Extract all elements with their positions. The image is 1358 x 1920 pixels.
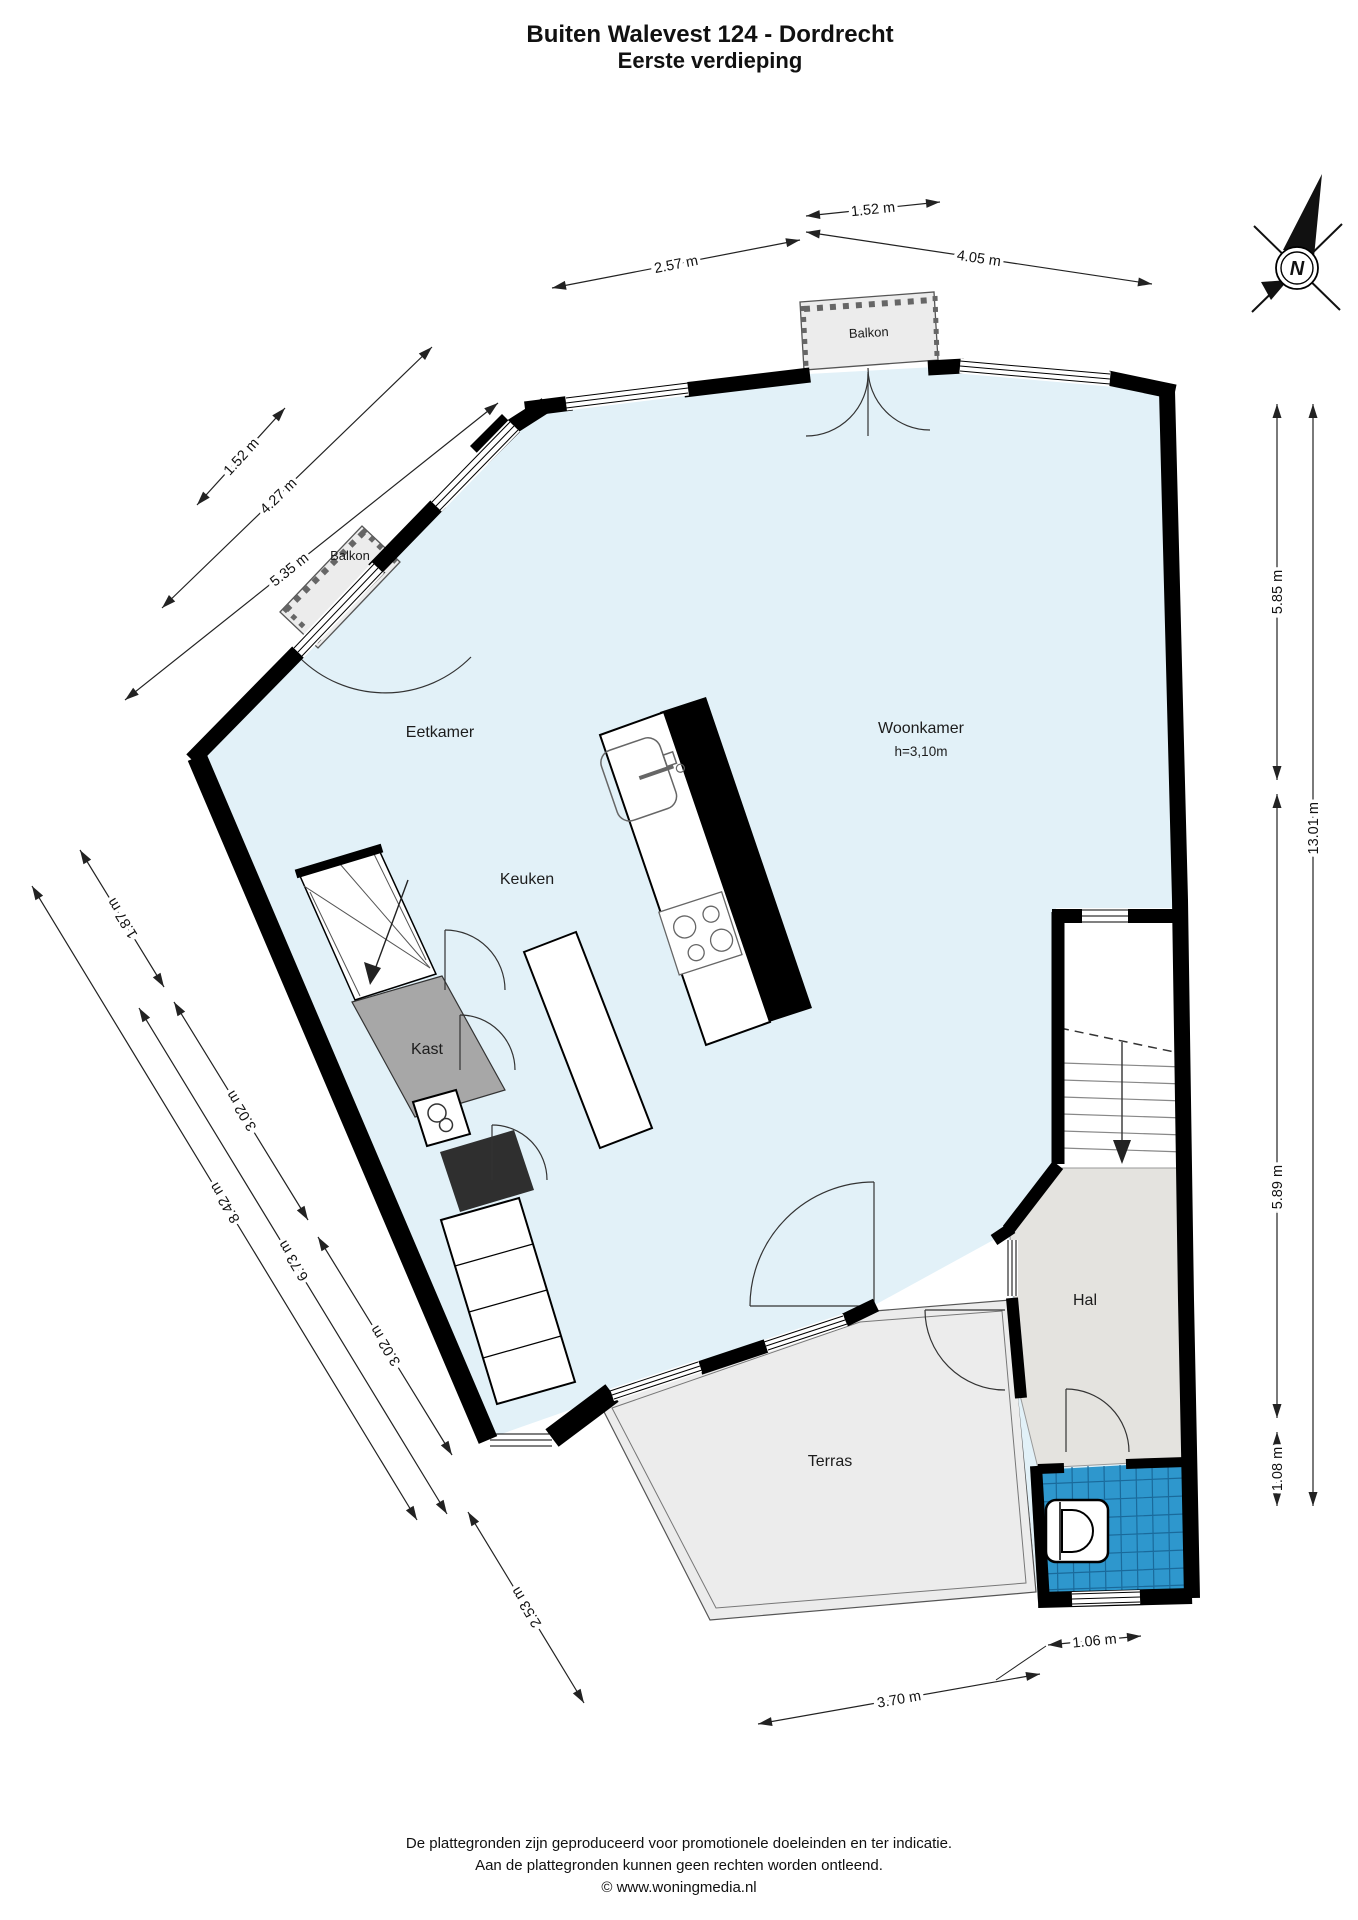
room-label-balkon-top: Balkon	[849, 324, 889, 341]
room-label-kast: Kast	[411, 1041, 444, 1058]
dimension-arrowhead	[552, 281, 567, 290]
dimension-arrowhead	[758, 1717, 773, 1726]
footer-copyright: © www.woningmedia.nl	[601, 1879, 756, 1896]
dimension: 2.53 m	[468, 1512, 584, 1703]
compass-north-label: N	[1290, 258, 1305, 280]
dimension: 1.52 m	[197, 408, 285, 505]
toilet-fixture	[1046, 1500, 1108, 1562]
dimension-arrowhead	[1309, 404, 1318, 418]
dimension-arrowhead	[297, 1206, 308, 1220]
dimension-arrowhead	[1273, 404, 1282, 418]
dimension-label: 6.73 m	[276, 1237, 313, 1283]
dimension-arrowhead	[806, 210, 820, 219]
dimension-arrowhead	[80, 850, 91, 864]
dimension-arrowhead	[926, 199, 940, 208]
dimension: 3.70 m	[758, 1672, 1040, 1726]
footer-disclaimer-1: De plattegronden zijn geproduceerd voor …	[406, 1835, 952, 1852]
dimension-arrowhead	[1273, 1404, 1282, 1418]
room-label-eetkamer: Eetkamer	[406, 724, 475, 741]
dimension-label: 1.52 m	[850, 200, 896, 221]
room-label-keuken: Keuken	[500, 871, 554, 888]
dimension-label: 1.52 m	[221, 435, 263, 479]
dimension-label: 4.05 m	[956, 248, 1002, 270]
dimension-label: 1.87 m	[104, 895, 141, 941]
dimension: 1.06 m	[1048, 1631, 1141, 1651]
dimension: 3.02 m	[174, 1002, 308, 1220]
dimension-label: 1.08 m	[1270, 1447, 1286, 1491]
dimension-label: 8.42 m	[207, 1179, 244, 1225]
toilet-room	[1038, 1462, 1186, 1602]
dimension: 1.08 m	[1270, 1432, 1286, 1506]
dimension-arrowhead	[484, 403, 498, 415]
dimension-label: 3.02 m	[223, 1087, 260, 1133]
room-label-terras: Terras	[808, 1453, 852, 1470]
room-label-woonkamer: Woonkamer	[878, 720, 965, 737]
dimension-label: 3.70 m	[876, 1688, 922, 1712]
dimension-arrowhead	[1127, 1633, 1141, 1642]
dimension-arrowhead	[1273, 1432, 1282, 1446]
floorplan-canvas: Buiten Walevest 124 - Dordrecht Eerste v…	[0, 0, 1358, 1920]
dimension-label: 13.01 m	[1306, 802, 1322, 854]
dimension-arrowhead	[1048, 1639, 1062, 1648]
room-height-woonkamer: h=3,10m	[895, 744, 948, 759]
dimension-leader	[996, 1646, 1046, 1680]
dimension: 1.52 m	[806, 199, 940, 220]
dimension-arrowhead	[32, 886, 43, 900]
dimension-arrowhead	[153, 973, 164, 987]
dimension-label: 5.89 m	[1270, 1165, 1286, 1209]
room-label-balkon-left: Balkon	[330, 548, 370, 563]
footer-disclaimer-2: Aan de plattegronden kunnen geen rechten…	[475, 1857, 883, 1874]
stairwell	[1056, 908, 1190, 1168]
dimension: 13.01 m	[1306, 404, 1322, 1506]
dimension-label: 5.35 m	[267, 550, 312, 590]
dimension-label: 5.85 m	[1270, 570, 1286, 614]
dimension-arrowhead	[406, 1506, 417, 1520]
dimension: 4.05 m	[806, 230, 1152, 287]
dimension-arrowhead	[573, 1689, 584, 1703]
dimension-arrowhead	[468, 1512, 479, 1526]
dimension-arrowhead	[806, 230, 821, 239]
dimension-arrowhead	[1309, 1492, 1318, 1506]
dimension-arrowhead	[1273, 766, 1282, 780]
north-needle	[1283, 174, 1322, 257]
page-subtitle: Eerste verdieping	[618, 48, 803, 73]
dimension-arrowhead	[441, 1441, 452, 1455]
dimension: 5.85 m	[1270, 404, 1286, 780]
dimension-arrowhead	[125, 688, 139, 700]
dimension-label: 3.02 m	[367, 1322, 404, 1368]
dimension-arrowhead	[1273, 1492, 1282, 1506]
page-title: Buiten Walevest 124 - Dordrecht	[526, 21, 893, 48]
dimension-arrowhead	[174, 1002, 185, 1016]
dimension-label: 1.06 m	[1072, 1631, 1118, 1651]
dimension: 1.87 m	[80, 850, 164, 987]
dimension: 5.89 m	[1270, 794, 1286, 1418]
hal-floor	[1010, 1168, 1190, 1468]
dimension-arrowhead	[139, 1008, 150, 1022]
dimension-arrowhead	[436, 1500, 447, 1514]
room-label-hal: Hal	[1073, 1292, 1097, 1309]
dimension-label: 4.27 m	[257, 475, 300, 517]
dimension: 2.57 m	[552, 238, 800, 290]
dimension-arrowhead	[1273, 794, 1282, 808]
compass: N	[1252, 174, 1342, 312]
dimension-arrowhead	[1137, 277, 1152, 286]
dimension-arrowhead	[318, 1237, 329, 1251]
dimension-arrowhead	[785, 238, 800, 247]
dimension-label: 2.53 m	[509, 1584, 546, 1630]
dimension-label: 2.57 m	[653, 253, 700, 277]
dimension-arrowhead	[1025, 1672, 1040, 1681]
